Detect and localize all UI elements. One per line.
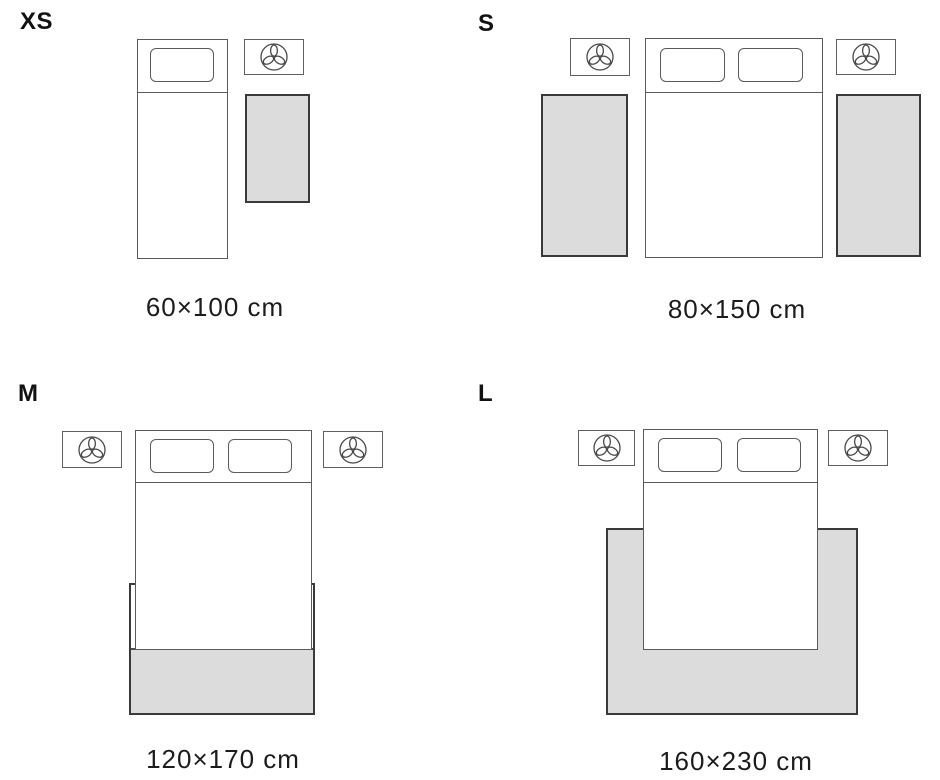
plant-icon (259, 42, 289, 72)
size-caption-l: 160×230 cm (659, 747, 813, 777)
size-label-s: S (478, 12, 495, 36)
size-caption-m: 120×170 cm (146, 745, 300, 775)
bed-top-view (643, 429, 818, 650)
nightstand (323, 431, 383, 468)
size-label-m: M (18, 382, 39, 406)
rug-size-guide: XS 60×100 cm S (0, 0, 940, 780)
rug (245, 94, 310, 203)
nightstand (62, 431, 122, 468)
plant-icon (77, 435, 107, 465)
nightstand (828, 430, 888, 466)
nightstand (578, 430, 635, 466)
plant-icon (843, 433, 873, 463)
pillow (660, 48, 725, 82)
plant-icon (585, 42, 615, 72)
size-label-l: L (478, 382, 493, 406)
bed-top-view (645, 38, 823, 258)
pillow (737, 438, 801, 472)
size-caption-s: 80×150 cm (668, 295, 806, 325)
size-label-xs: XS (20, 10, 53, 34)
bed-top-view (135, 430, 312, 650)
plant-icon (851, 42, 881, 72)
rug (541, 94, 628, 257)
pillow (738, 48, 803, 82)
pillow (658, 438, 722, 472)
pillow (150, 439, 214, 473)
plant-icon (338, 435, 368, 465)
plant-icon (592, 433, 622, 463)
bed-top-view (137, 39, 228, 259)
rug-visible-area (131, 648, 313, 713)
size-caption-xs: 60×100 cm (146, 293, 284, 323)
nightstand (570, 38, 630, 76)
pillow (228, 439, 292, 473)
rug (836, 94, 921, 257)
nightstand (244, 39, 304, 75)
nightstand (836, 39, 896, 75)
pillow (150, 48, 214, 82)
